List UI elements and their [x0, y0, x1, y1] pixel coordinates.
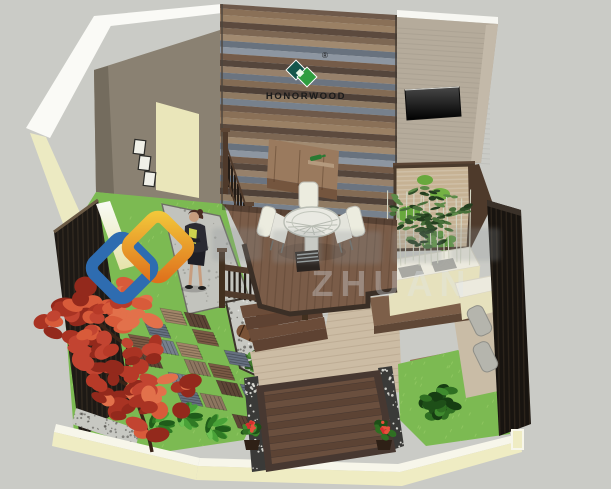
door: [156, 102, 199, 198]
watermark-blurred-characters: [212, 228, 500, 264]
honorwood-wordmark: HONORWOOD: [266, 91, 346, 102]
watermark-text: ZHUAN: [312, 263, 473, 304]
hair-bun: [197, 209, 203, 215]
courtyard-3d-render: ® HONORWOOD: [0, 0, 611, 489]
wall-post: [512, 430, 523, 449]
moss-circle: [417, 175, 433, 185]
registered-mark: ®: [322, 51, 328, 60]
rendering-canvas: ® HONORWOOD: [0, 0, 611, 489]
beige-wall: [397, 17, 498, 165]
tv-screen: [405, 87, 461, 120]
